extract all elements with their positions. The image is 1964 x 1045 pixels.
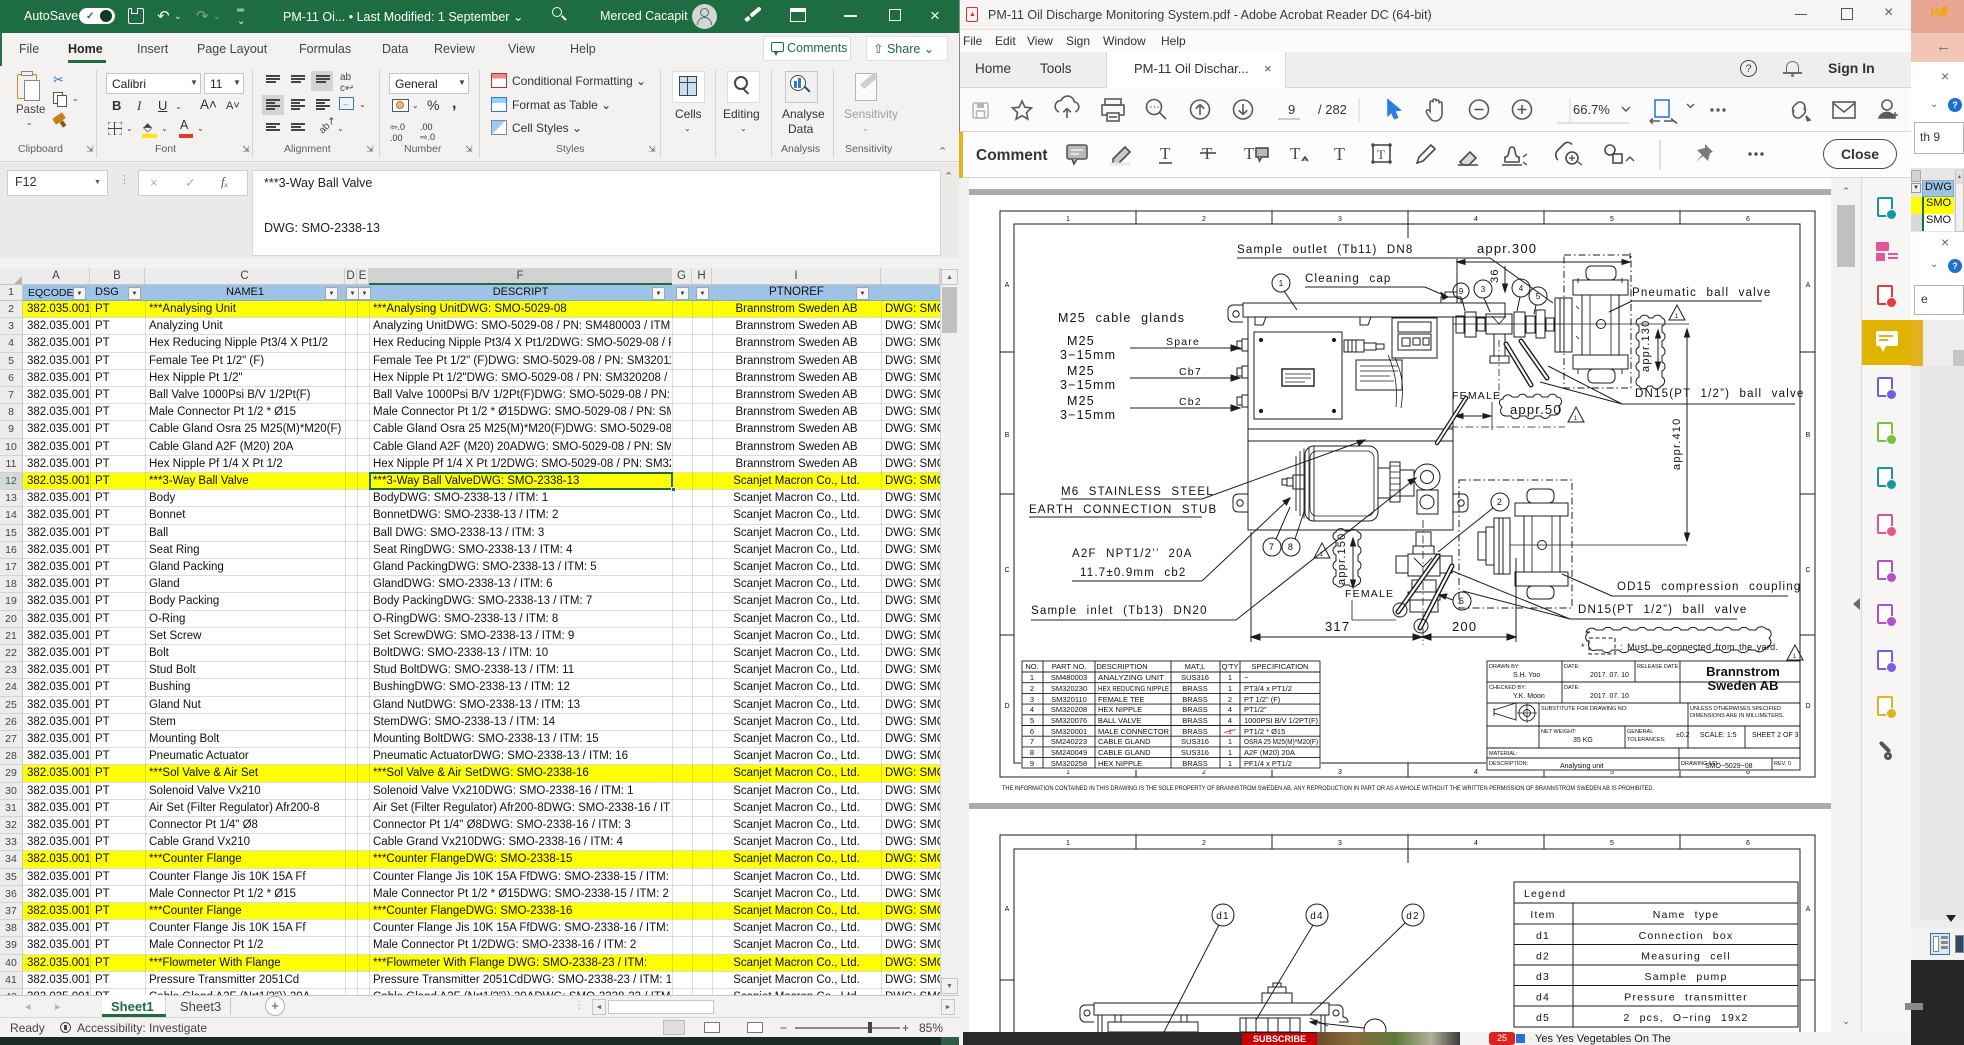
svg-text:SM320110: SM320110 <box>1051 695 1087 704</box>
svg-text:Y.K. Moon: Y.K. Moon <box>1513 693 1545 700</box>
svg-text:d5: d5 <box>1536 1012 1550 1024</box>
svg-text:SUS316: SUS316 <box>1181 673 1209 682</box>
svg-text:1000PSI B/V 1/2PT(F): 1000PSI B/V 1/2PT(F) <box>1244 716 1318 725</box>
svg-text:4: 4 <box>1030 705 1034 714</box>
svg-text:PT1/2": PT1/2" <box>1244 705 1267 714</box>
svg-text:SM240049: SM240049 <box>1051 748 1087 757</box>
svg-text:d4: d4 <box>1536 992 1550 1004</box>
svg-text:PF1/4 x PT1/2: PF1/4 x PT1/2 <box>1244 759 1292 768</box>
svg-text:Sweden AB: Sweden AB <box>1707 678 1778 693</box>
svg-text:Measuring cell: Measuring cell <box>1641 951 1731 963</box>
svg-text:NO.: NO. <box>1025 662 1038 671</box>
svg-text:2017. 07. 10: 2017. 07. 10 <box>1590 672 1629 679</box>
svg-text:T: T <box>1244 144 1255 163</box>
svg-text:d3: d3 <box>1536 971 1550 983</box>
svg-text:SMO−5029−08: SMO−5029−08 <box>1705 763 1753 770</box>
svg-text:2017. 07. 10: 2017. 07. 10 <box>1590 693 1629 700</box>
svg-text:2: 2 <box>1202 840 1206 847</box>
svg-text:BALL VALVE: BALL VALVE <box>1098 716 1141 725</box>
svg-text:MATERIAL:: MATERIAL: <box>1489 751 1518 757</box>
svg-text:BRASS: BRASS <box>1182 727 1207 736</box>
svg-text:RELEASE DATE:: RELEASE DATE: <box>1637 664 1680 670</box>
svg-text:Brannstrom: Brannstrom <box>1706 664 1780 679</box>
svg-text:A: A <box>1005 906 1010 913</box>
svg-text:1: 1 <box>1228 673 1232 682</box>
svg-text:d1: d1 <box>1216 911 1230 922</box>
svg-text:Legend: Legend <box>1524 888 1566 900</box>
svg-text:HEX NIPPLE: HEX NIPPLE <box>1098 705 1142 714</box>
svg-text:d2: d2 <box>1406 911 1420 922</box>
svg-text:DESCRIPTION: DESCRIPTION <box>1096 662 1147 671</box>
svg-text:DRAWN BY:: DRAWN BY: <box>1489 664 1520 670</box>
svg-text:SM240223: SM240223 <box>1051 737 1087 746</box>
svg-text:ANALYZING UNIT: ANALYZING UNIT <box>1098 673 1164 682</box>
svg-text:BRASS: BRASS <box>1182 759 1207 768</box>
svg-text:SHEET 2 OF 3: SHEET 2 OF 3 <box>1752 732 1799 739</box>
svg-text:FEMALE TEE: FEMALE TEE <box>1098 695 1145 704</box>
svg-text:Connection box: Connection box <box>1639 930 1734 942</box>
svg-text:DESCRIPTION:: DESCRIPTION: <box>1489 761 1529 767</box>
svg-text:THE INFORMATION CONTAINED I: THE INFORMATION CONTAINED IN THIS DRAWIN… <box>1002 785 1654 792</box>
svg-text:UNLESS OTHERWISES SPECIFIED: UNLESS OTHERWISES SPECIFIED <box>1690 706 1781 712</box>
svg-text:OSRA 25 M25(M)*M20(F): OSRA 25 M25(M)*M20(F) <box>1244 737 1318 746</box>
svg-text:1: 1 <box>1228 759 1232 768</box>
svg-text:Pressure transmitter: Pressure transmitter <box>1624 992 1748 1004</box>
svg-text:SM320258: SM320258 <box>1051 759 1087 768</box>
svg-text:MALE CONNECTOR: MALE CONNECTOR <box>1098 727 1170 736</box>
svg-text:d2: d2 <box>1536 951 1550 963</box>
svg-text:A2F (M20) 20A: A2F (M20) 20A <box>1244 748 1295 757</box>
svg-text:S.H. Yoo: S.H. Yoo <box>1513 672 1540 679</box>
svg-text:HEX REDUCING NIPPLE: HEX REDUCING NIPPLE <box>1098 684 1169 693</box>
svg-text:T: T <box>1160 144 1171 163</box>
svg-text:2: 2 <box>1030 684 1034 693</box>
svg-text:Item: Item <box>1530 909 1555 921</box>
svg-text:1: 1 <box>1228 727 1232 736</box>
svg-text:9: 9 <box>1288 102 1295 117</box>
svg-text:8: 8 <box>1030 748 1034 757</box>
svg-text:7: 7 <box>1030 737 1034 746</box>
svg-text:SPECIFICATION: SPECIFICATION <box>1252 662 1309 671</box>
svg-text:PT 1/2" (F): PT 1/2" (F) <box>1244 695 1281 704</box>
svg-text:5: 5 <box>1030 716 1034 725</box>
svg-text:1: 1 <box>1066 840 1070 847</box>
svg-text:Analysing unit: Analysing unit <box>1560 763 1604 770</box>
svg-text:Sample pump: Sample pump <box>1645 971 1728 983</box>
svg-text:/ 282: / 282 <box>1318 102 1347 117</box>
svg-text:SM320208: SM320208 <box>1051 705 1087 714</box>
svg-text:BRASS: BRASS <box>1182 695 1207 704</box>
svg-text:CHECKED BY:: CHECKED BY: <box>1489 685 1526 691</box>
svg-text:2 pcs, O−ring 19x2: 2 pcs, O−ring 19x2 <box>1623 1012 1748 1024</box>
svg-text:1: 1 <box>1228 737 1232 746</box>
svg-text:66.7%: 66.7% <box>1573 102 1610 117</box>
svg-text:T: T <box>1290 144 1301 163</box>
svg-text:T: T <box>1377 147 1385 162</box>
svg-text:SUBSTITUTE FOR DRAWING NO:: SUBSTITUTE FOR DRAWING NO: <box>1541 706 1628 712</box>
svg-text:BRASS: BRASS <box>1182 684 1207 693</box>
svg-text:GENERAL: GENERAL <box>1627 729 1653 735</box>
svg-text:−: − <box>1244 673 1249 682</box>
svg-text:DATE:: DATE: <box>1564 685 1580 691</box>
svg-text:3: 3 <box>1338 840 1342 847</box>
svg-text:CABLE GLAND: CABLE GLAND <box>1098 748 1151 757</box>
svg-text:Q'TY: Q'TY <box>1222 662 1239 671</box>
svg-text:1: 1 <box>1030 673 1034 682</box>
svg-text:DIMENSIONS ARE IN MILLIMETE: DIMENSIONS ARE IN MILLIMETERS. <box>1690 713 1785 719</box>
svg-text:4: 4 <box>1228 705 1232 714</box>
svg-text:d4: d4 <box>1310 911 1324 922</box>
svg-text:SM320230: SM320230 <box>1051 684 1087 693</box>
svg-text:SM320001: SM320001 <box>1051 727 1087 736</box>
svg-text:SUS316: SUS316 <box>1181 748 1209 757</box>
svg-text:35 KG: 35 KG <box>1573 737 1593 744</box>
svg-text:BRASS: BRASS <box>1182 716 1207 725</box>
svg-text:Name type: Name type <box>1653 909 1720 921</box>
svg-text:1: 1 <box>1228 748 1232 757</box>
svg-text:SM320076: SM320076 <box>1051 716 1087 725</box>
svg-text:NET WEIGHT:: NET WEIGHT: <box>1541 729 1577 735</box>
svg-text:REV. 0: REV. 0 <box>1774 761 1791 767</box>
svg-text:PT1/2 * Ø15: PT1/2 * Ø15 <box>1244 727 1285 736</box>
svg-text:d1: d1 <box>1536 930 1550 942</box>
svg-text:SM480003: SM480003 <box>1051 673 1087 682</box>
svg-text:MAT,L: MAT,L <box>1185 662 1206 671</box>
svg-text:9: 9 <box>1030 759 1034 768</box>
svg-text:1: 1 <box>1228 684 1232 693</box>
svg-text:6: 6 <box>1746 840 1750 847</box>
svg-text:DATE:: DATE: <box>1564 664 1580 670</box>
svg-text:4: 4 <box>1474 840 1478 847</box>
svg-text:BRASS: BRASS <box>1182 705 1207 714</box>
svg-text:A: A <box>1806 906 1811 913</box>
svg-text:CABLE GLAND: CABLE GLAND <box>1098 737 1151 746</box>
svg-text:SUS316: SUS316 <box>1181 737 1209 746</box>
svg-text:T: T <box>1334 144 1345 164</box>
svg-text:3: 3 <box>1030 695 1034 704</box>
svg-text:PT3/4 x PT1/2: PT3/4 x PT1/2 <box>1244 684 1292 693</box>
svg-text:±0.2: ±0.2 <box>1676 732 1690 739</box>
svg-text:TOLERANCES:: TOLERANCES: <box>1627 737 1666 743</box>
svg-text:HEX NIPPLE: HEX NIPPLE <box>1098 759 1142 768</box>
svg-text:PART NO.: PART NO. <box>1052 662 1087 671</box>
svg-text:4: 4 <box>1228 716 1232 725</box>
svg-text:5: 5 <box>1610 840 1614 847</box>
svg-text:2: 2 <box>1228 695 1232 704</box>
svg-text:6: 6 <box>1030 727 1034 736</box>
svg-text:SCALE: 1:5: SCALE: 1:5 <box>1700 732 1737 739</box>
